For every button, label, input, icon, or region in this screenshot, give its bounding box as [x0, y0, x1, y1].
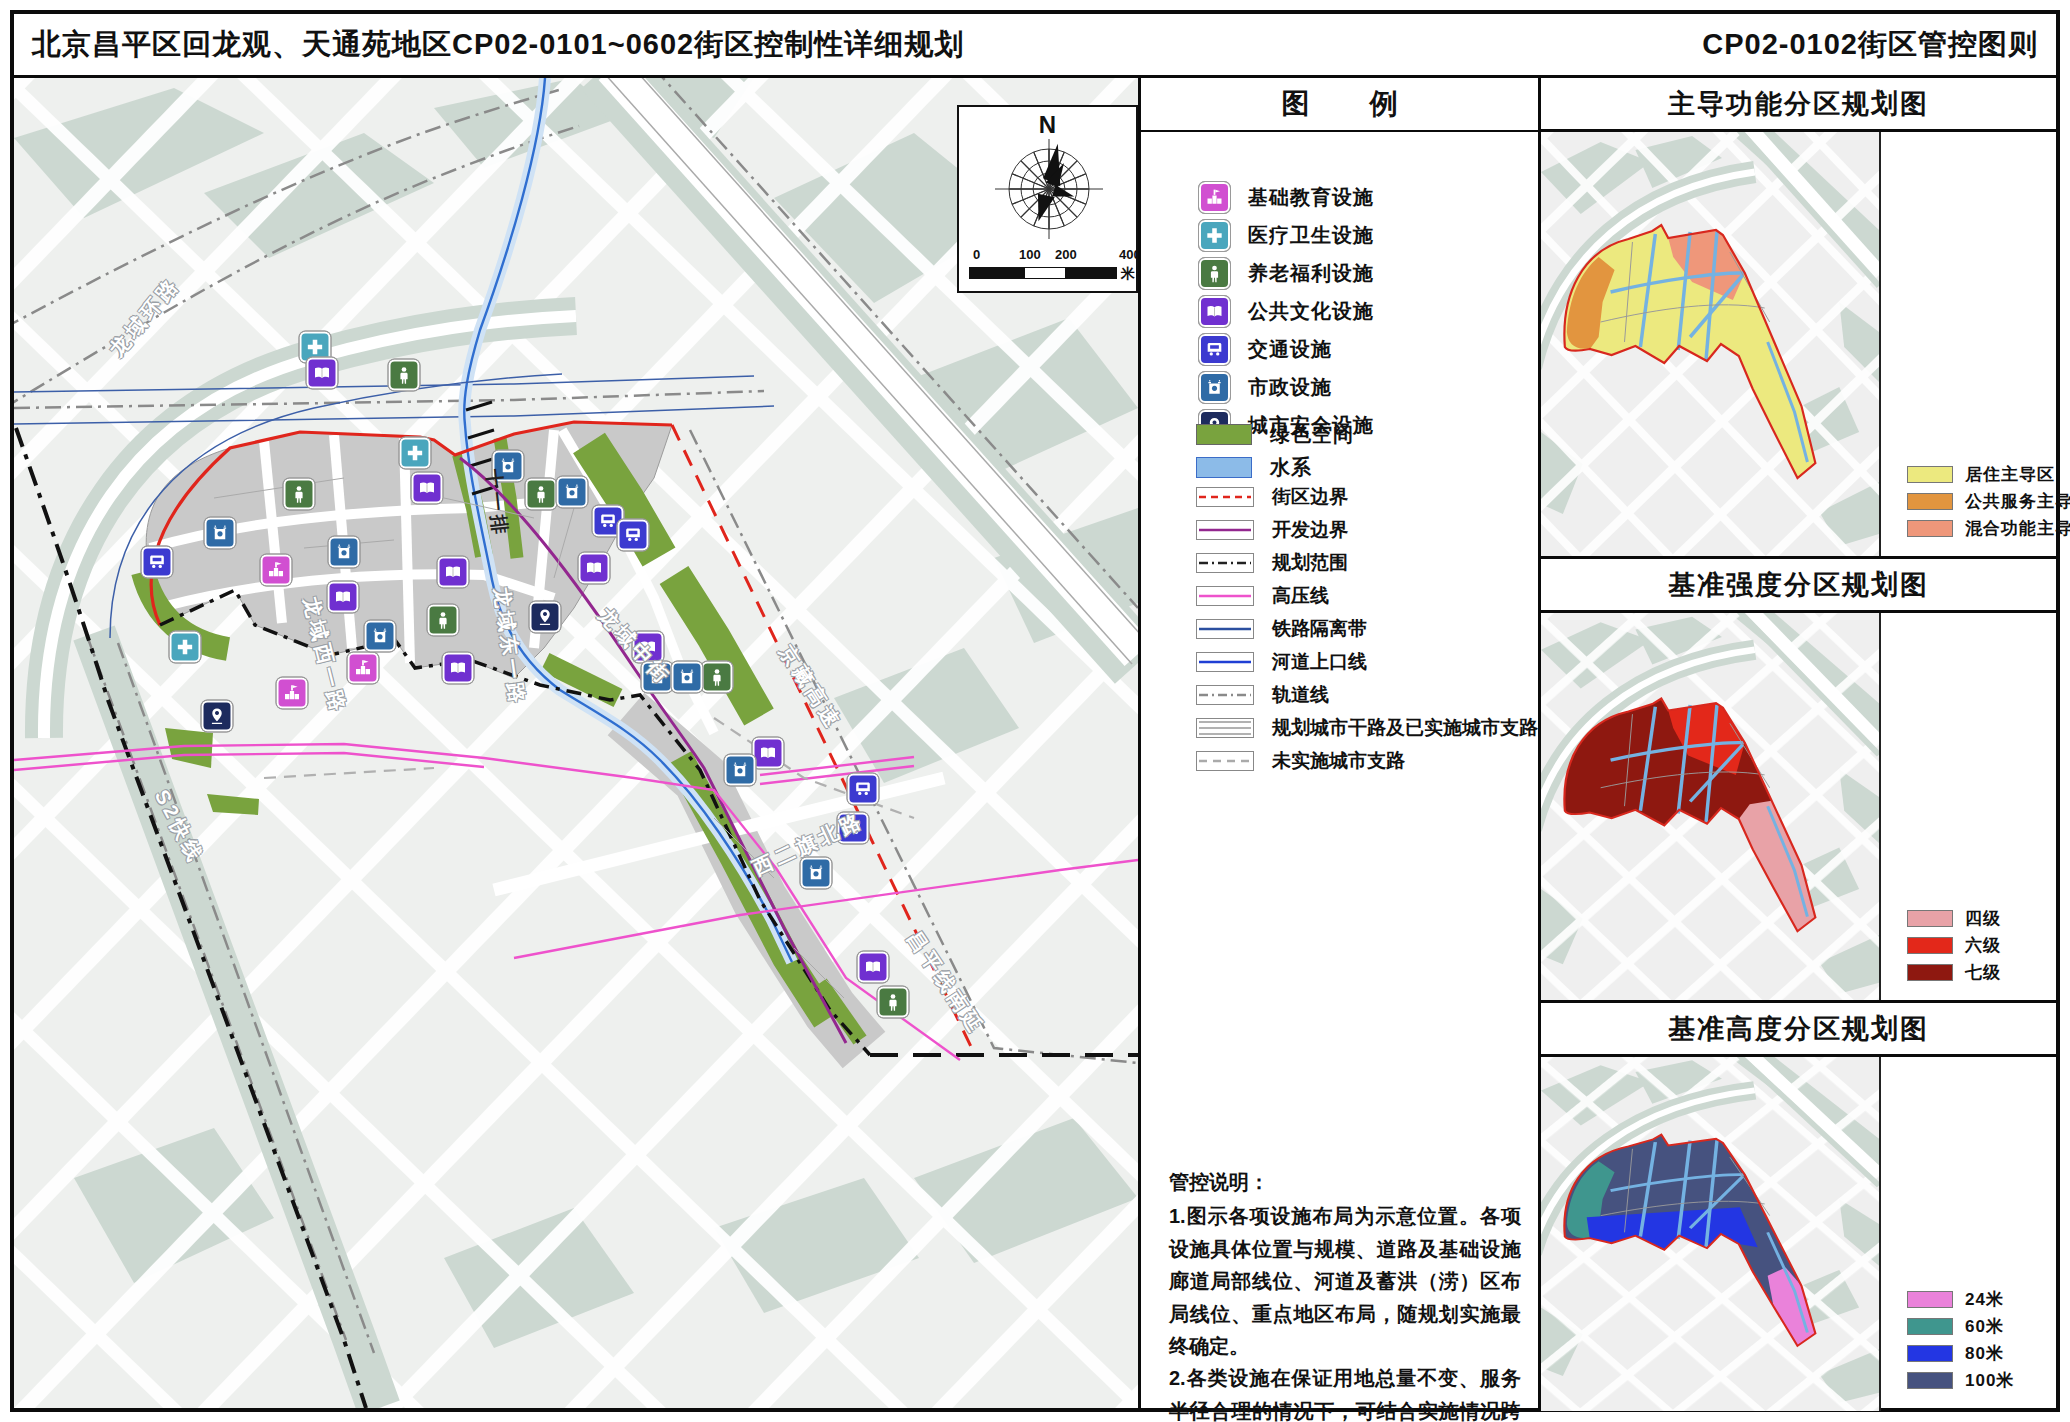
linetype-swatch — [1196, 685, 1254, 705]
panel-height-title: 基准高度分区规划图 — [1541, 1003, 2056, 1057]
zoning-panels-column: 主导功能分区规划图 居住主导区公共服务主导区混合功能主导区 基准强度分区规划图 — [1538, 78, 2056, 1408]
facility-label: 养老福利设施 — [1248, 260, 1374, 287]
page-title: 北京昌平区回龙观、天通苑地区CP02-0101~0602街区控制性详细规划 — [32, 25, 964, 65]
linetype-swatch — [1196, 619, 1254, 639]
scale-bar: 0100200400 米 — [969, 247, 1129, 289]
legend-facility-culture: 公共文化设施 — [1199, 292, 1374, 330]
area-label: 绿色空间 — [1270, 421, 1354, 448]
zoning-swatch — [1907, 910, 1953, 927]
zoning-label: 混合功能主导区 — [1965, 517, 2070, 540]
zoning-swatch — [1907, 466, 1953, 483]
zoning-label: 60米 — [1965, 1315, 2004, 1338]
zoning-label: 居住主导区 — [1965, 463, 2055, 486]
height-zoning-map — [1541, 1057, 1881, 1411]
zoning-legend-entry: 60米 — [1907, 1313, 2014, 1340]
zoning-legend-entry: 居住主导区 — [1907, 461, 2070, 488]
legend-facility-elderly: 养老福利设施 — [1199, 254, 1374, 292]
compass-box: N 0100200400 米 — [957, 105, 1138, 293]
zoning-swatch — [1907, 493, 1953, 510]
intensity-zoning-legend: 四级六级七级 — [1907, 905, 2001, 986]
legend-area: 绿色空间 — [1196, 418, 1354, 451]
medical-icon — [1199, 220, 1230, 251]
school-icon — [1199, 182, 1230, 213]
zoning-legend-entry: 公共服务主导区 — [1907, 488, 2070, 515]
linetype-label: 河道上口线 — [1272, 649, 1367, 675]
facility-label: 交通设施 — [1248, 336, 1332, 363]
zoning-legend-entry: 七级 — [1907, 959, 2001, 986]
scale-tick: 400 — [1119, 247, 1138, 262]
note-item: 1.图示各项设施布局为示意位置。各项设施具体位置与规模、道路及基础设施廊道局部线… — [1169, 1200, 1521, 1362]
function-zoning-map — [1541, 132, 1881, 556]
zoning-swatch — [1907, 964, 1953, 981]
intensity-zoning-map — [1541, 613, 1881, 1003]
zoning-swatch — [1907, 1372, 1953, 1389]
zoning-label: 公共服务主导区 — [1965, 490, 2070, 513]
plan-sheet: 北京昌平区回龙观、天通苑地区CP02-0101~0602街区控制性详细规划 CP… — [0, 0, 2070, 1422]
height-zoning-legend: 24米60米80米100米 — [1907, 1286, 2014, 1394]
legend-linetype: 轨道线 — [1196, 678, 1538, 711]
legend-facility-school: 基础教育设施 — [1199, 178, 1374, 216]
zoning-label: 六级 — [1965, 934, 2001, 957]
sheet-frame: 北京昌平区回龙观、天通苑地区CP02-0101~0602街区控制性详细规划 CP… — [10, 10, 2060, 1412]
zoning-legend-entry: 24米 — [1907, 1286, 2014, 1313]
culture-icon — [1199, 296, 1230, 327]
legend-title-char-1: 图 — [1282, 85, 1310, 123]
facility-label: 公共文化设施 — [1248, 298, 1374, 325]
sheet-code-title: CP02-0102街区管控图则 — [1702, 25, 2038, 65]
zoning-label: 100米 — [1965, 1369, 2014, 1392]
elderly-icon — [1199, 258, 1230, 289]
linetype-label: 未实施城市支路 — [1272, 748, 1405, 774]
zoning-swatch — [1907, 937, 1953, 954]
linetype-swatch — [1196, 751, 1254, 771]
legend-linetype: 河道上口线 — [1196, 645, 1538, 678]
scale-tick: 200 — [1055, 247, 1077, 262]
legend-facility-municipal: 市政设施 — [1199, 368, 1374, 406]
linetype-label: 轨道线 — [1272, 682, 1329, 708]
legend-area-list: 绿色空间水系 — [1196, 418, 1354, 484]
linetype-swatch — [1196, 520, 1254, 540]
transit-icon — [1199, 334, 1230, 365]
zoning-label: 四级 — [1965, 907, 2001, 930]
legend-linetype: 规划城市干路及已实施城市支路 — [1196, 711, 1538, 744]
zoning-label: 七级 — [1965, 961, 2001, 984]
note-item: 2.各类设施在保证用地总量不变、服务半径合理的情况下，可结合实施情况跨街区统筹。 — [1169, 1362, 1521, 1422]
notes-paragraphs: 1.图示各项设施布局为示意位置。各项设施具体位置与规模、道路及基础设施廊道局部线… — [1169, 1200, 1521, 1422]
scale-tick: 0 — [973, 247, 980, 262]
linetype-label: 开发边界 — [1272, 517, 1348, 543]
linetype-label: 高压线 — [1272, 583, 1329, 609]
compass-rose-icon — [992, 137, 1107, 245]
legend-linetype: 开发边界 — [1196, 513, 1538, 546]
zoning-legend-entry: 100米 — [1907, 1367, 2014, 1394]
facility-label: 基础教育设施 — [1248, 184, 1374, 211]
linetype-swatch — [1196, 553, 1254, 573]
control-notes: 管控说明： 1.图示各项设施布局为示意位置。各项设施具体位置与规模、道路及基础设… — [1169, 1166, 1521, 1422]
linetype-swatch — [1196, 487, 1254, 507]
area-label: 水系 — [1270, 454, 1312, 481]
panel-intensity-title: 基准强度分区规划图 — [1541, 559, 2056, 613]
legend-facility-transit: 交通设施 — [1199, 330, 1374, 368]
legend-linetype: 高压线 — [1196, 579, 1538, 612]
zoning-legend-entry: 80米 — [1907, 1340, 2014, 1367]
linetype-label: 铁路隔离带 — [1272, 616, 1367, 642]
legend-line-list: 街区边界开发边界规划范围高压线铁路隔离带河道上口线轨道线规划城市干路及已实施城市… — [1196, 480, 1538, 777]
zoning-swatch — [1907, 1291, 1953, 1308]
zoning-legend-entry: 混合功能主导区 — [1907, 515, 2070, 542]
legend-linetype: 铁路隔离带 — [1196, 612, 1538, 645]
main-map: 龙域环路龙域西一路龙域东一路龙域中街十一排京藏高速S2快线西二旗北路昌平线南延 … — [14, 78, 1138, 1408]
legend-linetype: 规划范围 — [1196, 546, 1538, 579]
scale-bar-strip — [969, 267, 1117, 279]
zoning-swatch — [1907, 1345, 1953, 1362]
zoning-swatch — [1907, 520, 1953, 537]
zoning-label: 80米 — [1965, 1342, 2004, 1365]
legend-title-char-2: 例 — [1370, 85, 1398, 123]
zoning-swatch — [1907, 1318, 1953, 1335]
legend-facility-list: 基础教育设施医疗卫生设施养老福利设施公共文化设施交通设施市政设施城市安全设施 — [1199, 178, 1374, 444]
header: 北京昌平区回龙观、天通苑地区CP02-0101~0602街区控制性详细规划 CP… — [14, 14, 2056, 78]
legend-panel: 图 例 基础教育设施医疗卫生设施养老福利设施公共文化设施交通设施市政设施城市安全… — [1138, 78, 1538, 1408]
area-swatch — [1196, 424, 1252, 445]
facility-label: 医疗卫生设施 — [1248, 222, 1374, 249]
linetype-swatch — [1196, 586, 1254, 606]
north-label: N — [959, 111, 1136, 139]
panel-height-zoning: 基准高度分区规划图 24米60米80米100米 — [1541, 1000, 2056, 1408]
legend-linetype: 街区边界 — [1196, 480, 1538, 513]
scale-tick: 100 — [1019, 247, 1041, 262]
linetype-label: 规划城市干路及已实施城市支路 — [1272, 715, 1538, 741]
scale-unit: 米 — [1121, 265, 1135, 283]
panel-intensity-zoning: 基准强度分区规划图 四级六级七级 — [1541, 556, 2056, 1000]
panel-function-zoning: 主导功能分区规划图 居住主导区公共服务主导区混合功能主导区 — [1541, 78, 2056, 556]
notes-title: 管控说明： — [1169, 1166, 1521, 1198]
function-zoning-legend: 居住主导区公共服务主导区混合功能主导区 — [1907, 461, 2070, 542]
linetype-swatch — [1196, 718, 1254, 738]
zoning-legend-entry: 六级 — [1907, 932, 2001, 959]
panel-function-title: 主导功能分区规划图 — [1541, 78, 2056, 132]
linetype-label: 规划范围 — [1272, 550, 1348, 576]
municipal-icon — [1199, 372, 1230, 403]
legend-facility-medical: 医疗卫生设施 — [1199, 216, 1374, 254]
facility-label: 市政设施 — [1248, 374, 1332, 401]
area-swatch — [1196, 457, 1252, 478]
legend-linetype: 未实施城市支路 — [1196, 744, 1538, 777]
zoning-legend-entry: 四级 — [1907, 905, 2001, 932]
zoning-label: 24米 — [1965, 1288, 2004, 1311]
linetype-label: 街区边界 — [1272, 484, 1348, 510]
legend-title: 图 例 — [1141, 78, 1538, 132]
linetype-swatch — [1196, 652, 1254, 672]
